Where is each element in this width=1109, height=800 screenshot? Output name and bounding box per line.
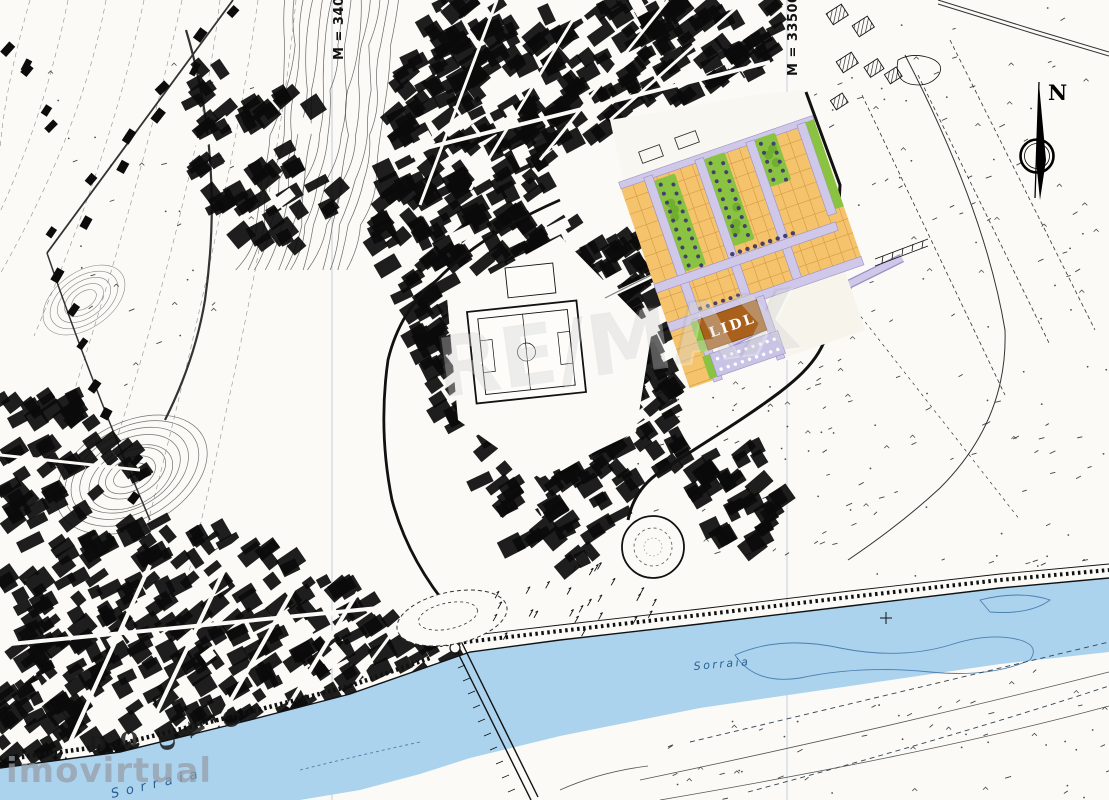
map-screenshot: LIDL N M = 33500 M = 34000 Sorraia Sorra… [0,0,1109,800]
sports-court [505,263,556,298]
watermark-bottom-left: imovirtual [6,751,212,791]
grid-label-left: M = 34000 [332,0,347,60]
bullring [622,516,684,578]
grid-label-right: M = 33500 [786,0,801,76]
site-plan-map: LIDL N M = 33500 M = 34000 Sorraia Sorra… [0,0,1109,800]
north-label: N [1048,80,1067,105]
svg-text:O: O [120,727,138,752]
